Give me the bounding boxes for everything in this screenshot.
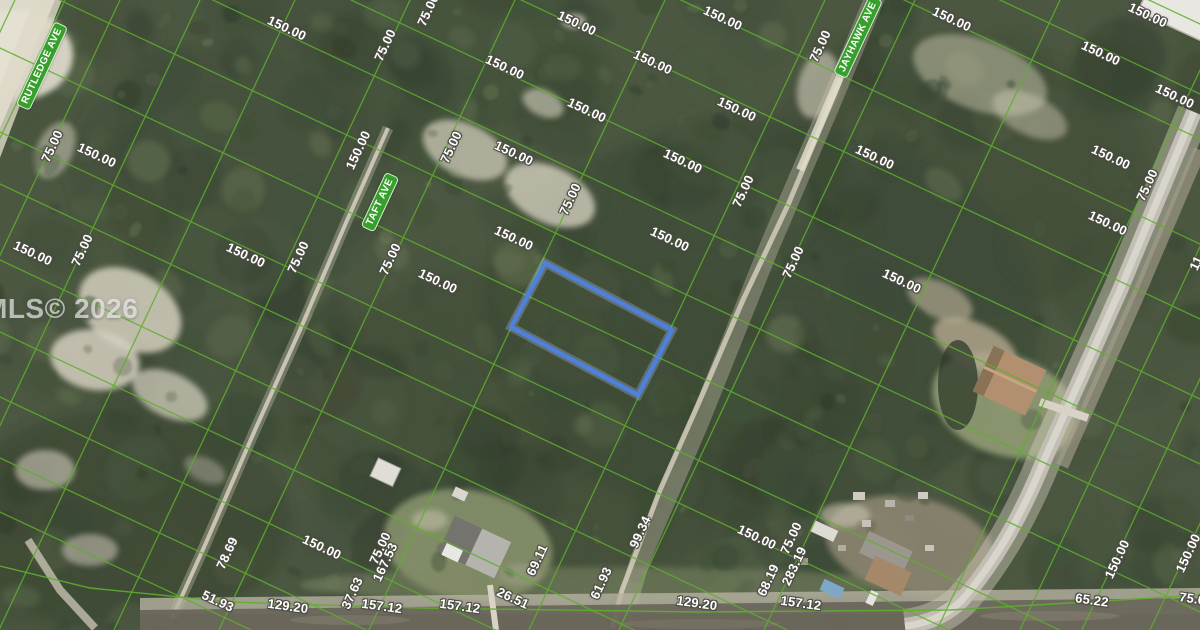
dimension-label: 75.00 [437,129,465,166]
dimension-label: 157.12 [780,593,823,614]
dimension-label: 75.00 [376,241,404,278]
dimension-label: 75.00 [414,0,442,28]
mls-watermark: MLS© 2026 [0,293,138,325]
dimension-label: 75.00 [68,232,96,269]
dimension-label: 150.00 [565,95,608,126]
dimension-label: 99.34 [626,514,654,551]
dimension-label: 150.00 [343,128,374,171]
dimension-label: 75.00 [556,181,584,218]
dimension-label: 157.12 [361,596,404,617]
dimension-label: 150.00 [1102,537,1133,580]
dimension-label: 150.00 [1089,142,1132,173]
dimension-label: 150.00 [1126,0,1169,30]
dimension-label: 150.00 [1173,531,1200,574]
dimension-label: 150.00 [483,52,526,83]
street-name-label: JAYHAWK AVE [833,0,883,79]
dimension-label: 129.20 [676,593,719,614]
dimension-label: 75.00 [729,173,757,210]
dimension-label: 150.00 [1086,208,1129,239]
aerial-parcel-map: 150.00150.0075.00150.0075.00150.0075.007… [0,0,1200,630]
dimension-label: 157.12 [439,596,482,617]
dimension-label: 75.00 [1178,589,1200,609]
dimension-label: 150.00 [1153,81,1196,112]
dimension-label: 150.00 [853,142,896,173]
street-name-label: RUTLEDGE AVE [16,21,68,111]
dimension-label: 75.00 [806,28,834,65]
dimension-label: 11 [1186,253,1200,272]
dimension-label: 69.11 [523,542,550,578]
map-label-layer: 150.00150.0075.00150.0075.00150.0075.007… [0,0,1200,630]
dimension-label: 150.00 [1079,38,1122,69]
dimension-label: 150.00 [224,240,267,271]
dimension-label: 78.69 [213,535,241,572]
dimension-label: 150.00 [300,532,343,563]
dimension-label: 75.00 [284,239,312,276]
dimension-label: 75.00 [371,27,399,64]
dimension-label: 150.00 [701,3,744,34]
dimension-label: 150.00 [555,8,598,39]
dimension-label: 150.00 [648,224,691,255]
street-name-label: TAFT AVE [360,172,399,233]
dimension-label: 75.00 [779,244,807,281]
dimension-label: 51.93 [200,587,237,615]
dimension-label: 150.00 [265,13,308,44]
dimension-label: 129.20 [267,596,310,617]
dimension-label: 26.51 [495,584,532,612]
dimension-label: 150.00 [735,522,778,553]
dimension-label: 150.00 [880,266,923,297]
dimension-label: 150.00 [930,4,973,35]
dimension-label: 68.19 [754,562,782,599]
dimension-label: 150.00 [492,138,535,169]
dimension-label: 65.22 [1074,590,1109,610]
dimension-label: 61.93 [587,565,615,602]
dimension-label: 150.00 [11,238,54,269]
dimension-label: 75.00 [38,128,66,165]
dimension-label: 75.00 [1133,167,1161,204]
dimension-label: 150.00 [416,266,459,297]
dimension-label: 150.00 [75,140,118,171]
dimension-label: 150.00 [715,94,758,125]
dimension-label: 150.00 [492,223,535,254]
dimension-label: 150.00 [661,146,704,177]
dimension-label: 150.00 [631,47,674,78]
